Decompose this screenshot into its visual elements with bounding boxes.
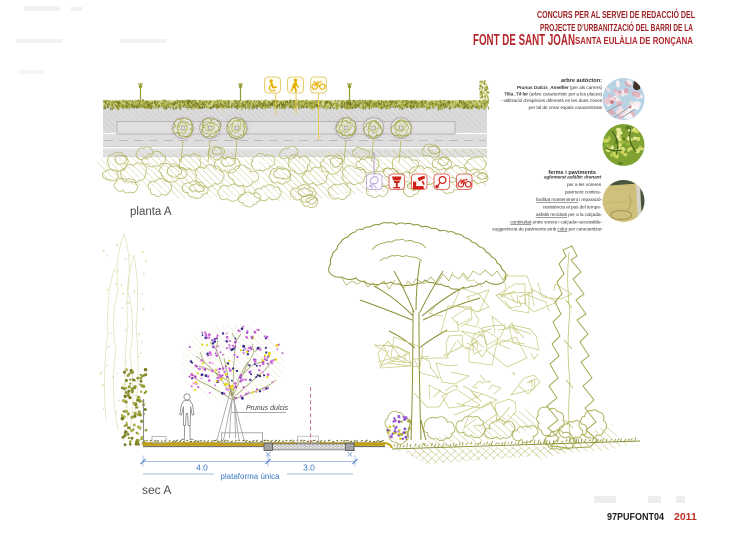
- svg-text:planta A: planta A: [130, 206, 172, 218]
- svg-text:4.0: 4.0: [196, 463, 208, 473]
- svg-text:paviment continu-: paviment continu-: [565, 190, 602, 196]
- svg-text:CONCURS PER AL SERVEI DE REDAC: CONCURS PER AL SERVEI DE REDACCIÓ DEL: [537, 8, 695, 21]
- svg-text:- utilització d’espècies difer: - utilització d’espècies diferents en le…: [501, 98, 603, 104]
- svg-text:97PUFONT04: 97PUFONT04: [607, 511, 664, 523]
- svg-text:FONT DE SANT JOAN: FONT DE SANT JOAN: [473, 32, 575, 49]
- svg-text:per tal de crear espais caract: per tal de crear espais caracteritzats: [528, 105, 602, 111]
- svg-text:per a les voreres: per a les voreres: [567, 182, 602, 188]
- svg-text:facilitat manteniment i repara: facilitat manteniment i reparació-: [536, 197, 602, 203]
- svg-text:2011: 2011: [674, 511, 697, 523]
- svg-text:resistència al pas del temps-: resistència al pas del temps-: [543, 205, 601, 211]
- svg-text:sec A: sec A: [142, 483, 171, 497]
- svg-text:3.0: 3.0: [303, 463, 315, 473]
- svg-text:suggerència de paviments amb c: suggerència de paviments amb color per c…: [492, 227, 603, 233]
- svg-text:asfalts reciclats per a la cal: asfalts reciclats per a la calçada-: [536, 212, 603, 218]
- svg-text:Prunus Dulcis_Ametller (per al: Prunus Dulcis_Ametller (per als carrers): [517, 85, 603, 91]
- svg-text:aglomerat asfàltic drenant: aglomerat asfàltic drenant: [544, 175, 602, 181]
- svg-text:Tilia_Til·ler (arbre caracterí: Tilia_Til·ler (arbre característic per a…: [504, 92, 602, 98]
- svg-text:SANTA EULÀLIA DE RONÇANA: SANTA EULÀLIA DE RONÇANA: [575, 34, 693, 47]
- svg-text:plataforma única: plataforma única: [220, 472, 280, 481]
- svg-text:Prunus dulcis: Prunus dulcis: [246, 405, 289, 412]
- svg-text:continuïtat entre vorera i cal: continuïtat entre vorera i calçada=acces…: [510, 220, 602, 226]
- svg-text:arbre autòcton:: arbre autòcton:: [561, 78, 602, 84]
